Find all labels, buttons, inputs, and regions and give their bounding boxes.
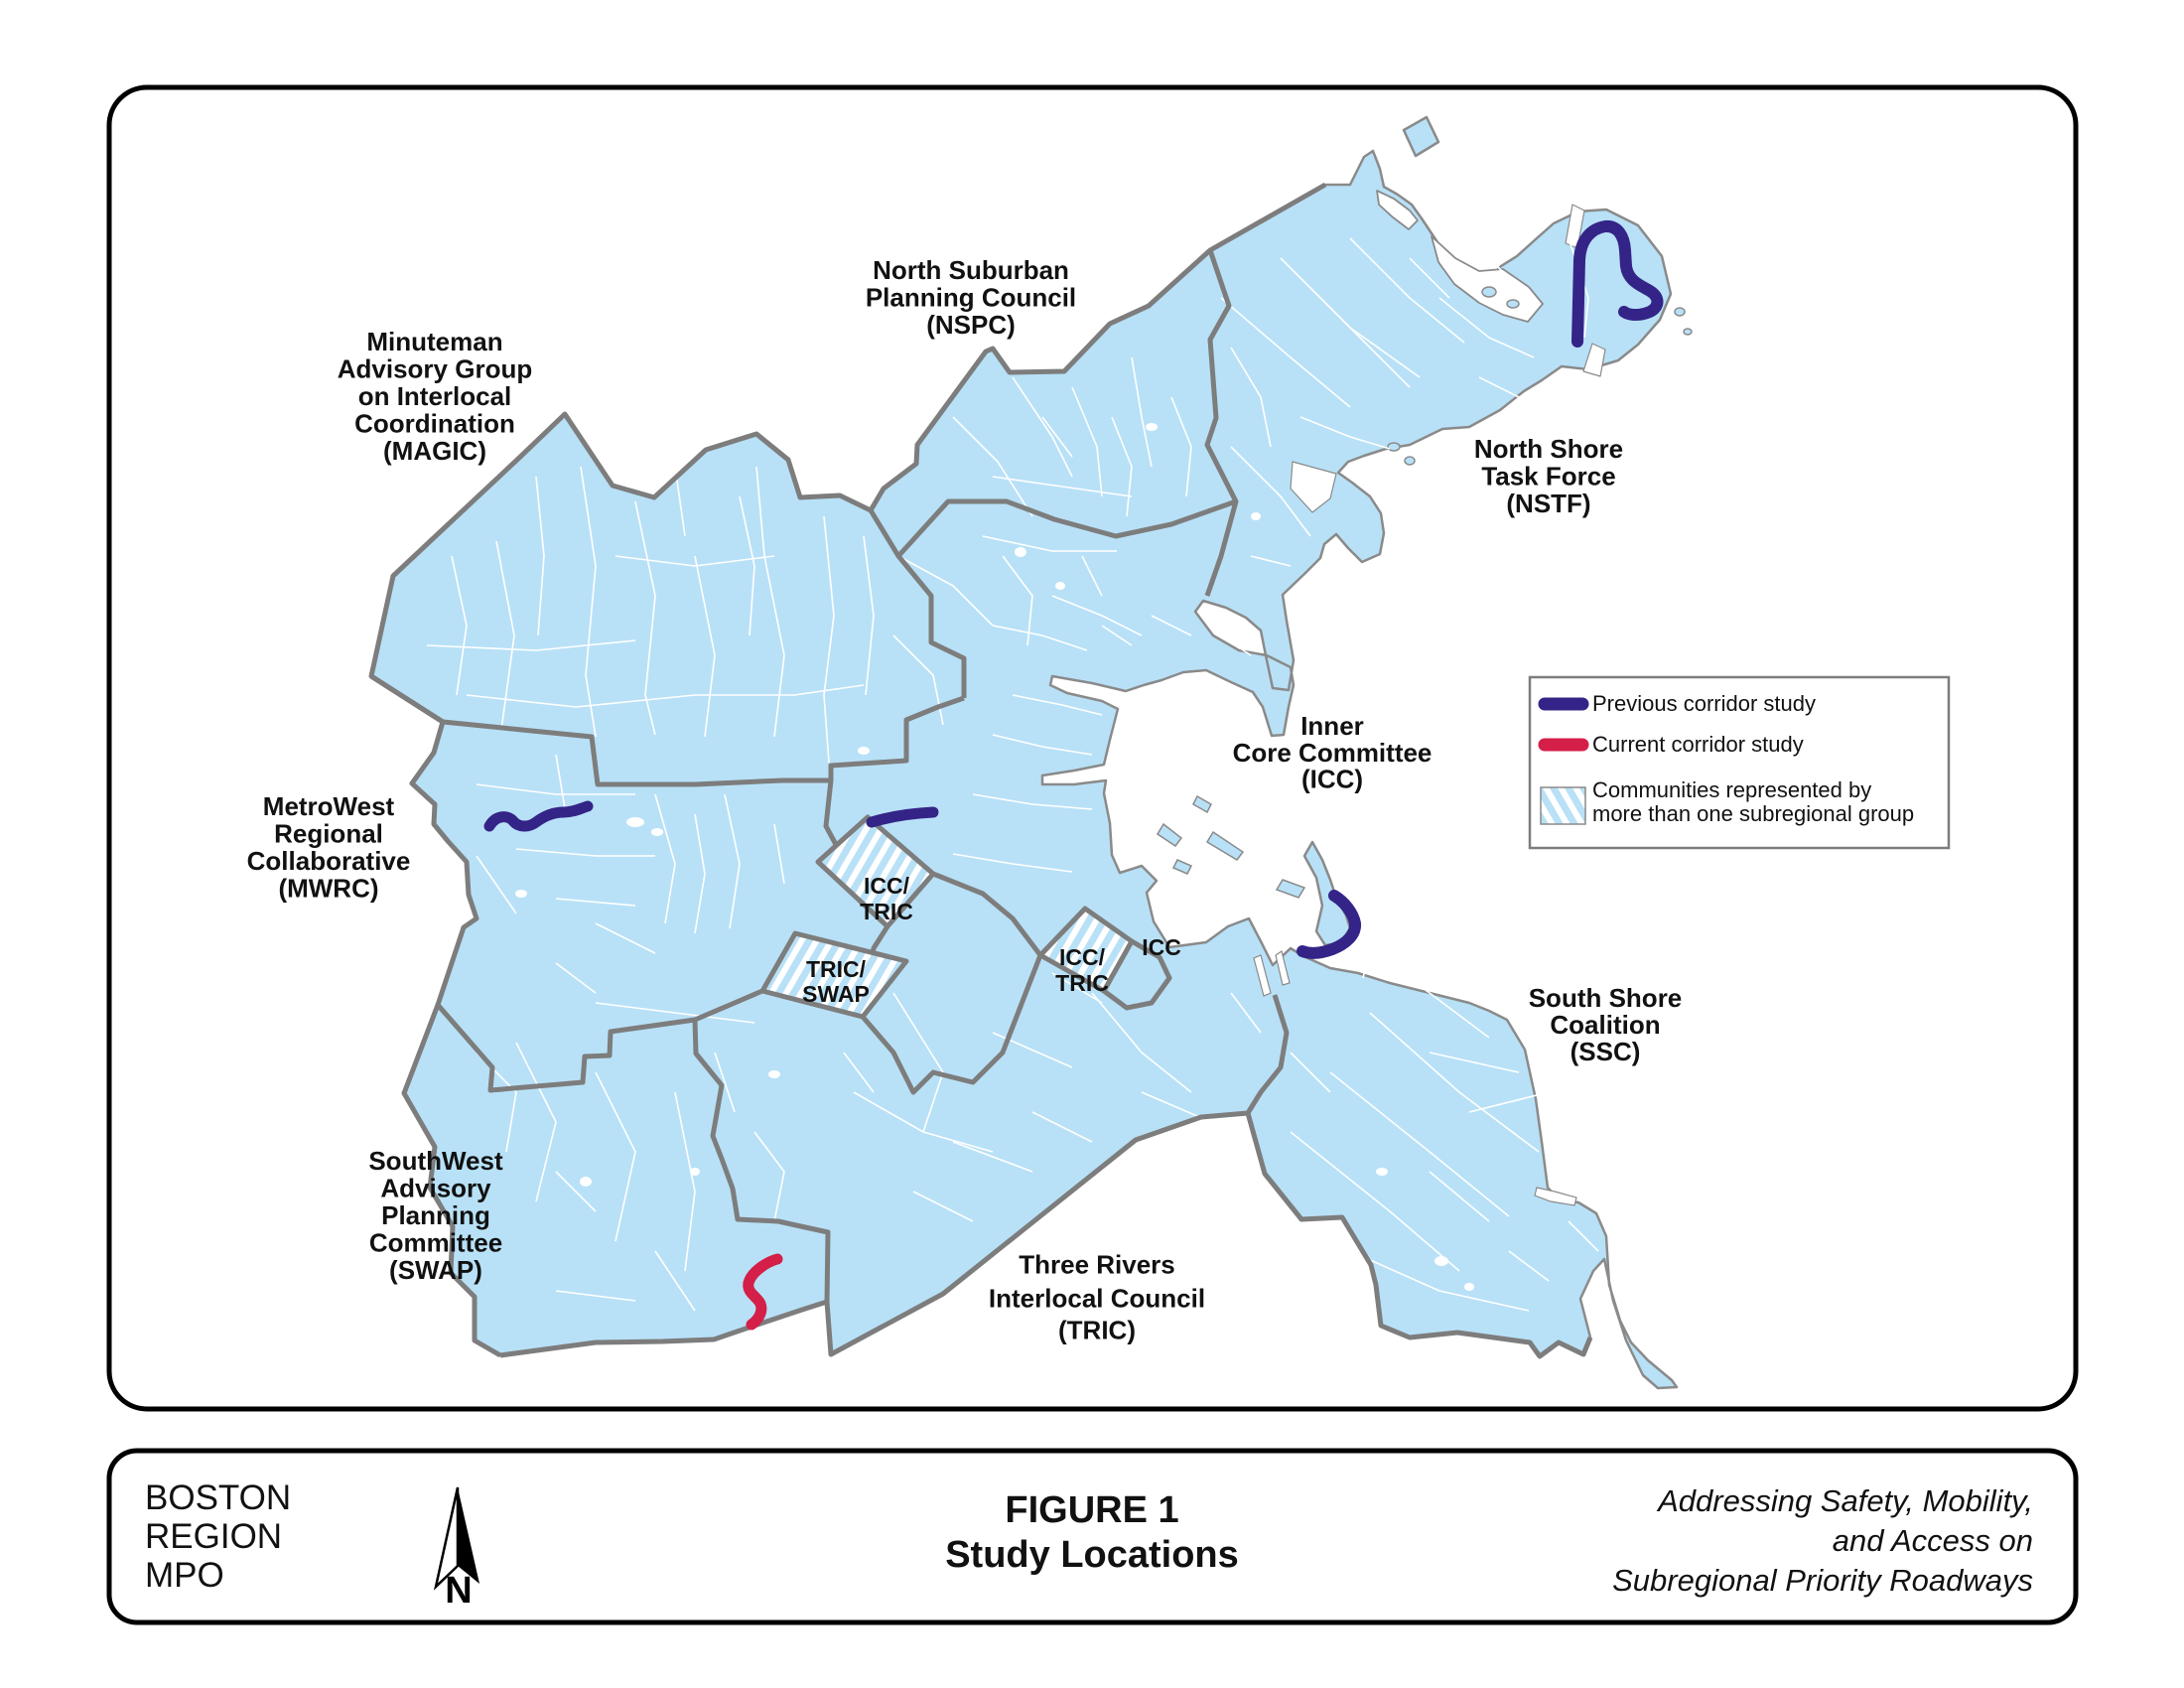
svg-text:Previous corridor study: Previous corridor study: [1592, 691, 1816, 716]
svg-text:Three Rivers: Three Rivers: [1019, 1250, 1175, 1280]
svg-text:North Suburban: North Suburban: [873, 255, 1069, 285]
svg-text:Current corridor study: Current corridor study: [1592, 732, 1804, 757]
svg-text:South Shore: South Shore: [1529, 983, 1683, 1013]
svg-text:SouthWest: SouthWest: [368, 1146, 503, 1176]
svg-text:Task Force: Task Force: [1481, 462, 1615, 492]
svg-text:(SSC): (SSC): [1570, 1037, 1641, 1066]
svg-text:SWAP: SWAP: [802, 981, 870, 1007]
svg-text:Coalition: Coalition: [1550, 1010, 1660, 1040]
svg-text:Planning Council: Planning Council: [866, 283, 1076, 313]
svg-text:Study Locations: Study Locations: [945, 1534, 1239, 1576]
svg-text:(ICC): (ICC): [1301, 765, 1363, 794]
svg-text:(SWAP): (SWAP): [389, 1255, 482, 1285]
svg-text:Core Committee: Core Committee: [1233, 738, 1433, 768]
svg-text:and Access on: and Access on: [1833, 1523, 2033, 1558]
svg-text:N: N: [445, 1570, 472, 1612]
svg-text:ICC: ICC: [1142, 934, 1181, 960]
svg-text:TRIC/: TRIC/: [806, 956, 867, 982]
svg-text:ICC/: ICC/: [864, 873, 910, 899]
svg-text:(MWRC): (MWRC): [278, 874, 378, 904]
svg-text:(TRIC): (TRIC): [1058, 1316, 1136, 1345]
svg-text:Minuteman: Minuteman: [366, 327, 502, 356]
svg-text:North Shore: North Shore: [1474, 434, 1623, 464]
svg-text:Advisory: Advisory: [380, 1174, 491, 1203]
svg-text:TRIC: TRIC: [860, 899, 913, 924]
svg-text:FIGURE 1: FIGURE 1: [1005, 1489, 1178, 1531]
svg-text:on Interlocal: on Interlocal: [358, 381, 512, 411]
svg-text:(NSPC): (NSPC): [926, 310, 1016, 340]
svg-text:Regional: Regional: [274, 819, 383, 849]
svg-text:Interlocal Council: Interlocal Council: [989, 1284, 1205, 1314]
svg-text:Planning: Planning: [381, 1200, 490, 1230]
svg-text:Subregional Priority Roadways: Subregional Priority Roadways: [1612, 1563, 2033, 1598]
svg-text:Committee: Committee: [369, 1228, 502, 1258]
svg-text:MPO: MPO: [145, 1556, 224, 1595]
svg-text:more than one subregional grou: more than one subregional group: [1592, 801, 1914, 826]
svg-text:TRIC: TRIC: [1055, 970, 1109, 996]
svg-text:(NSTF): (NSTF): [1506, 489, 1590, 518]
svg-text:Communities represented by: Communities represented by: [1592, 777, 1871, 802]
svg-text:(MAGIC): (MAGIC): [383, 436, 486, 466]
svg-text:Advisory Group: Advisory Group: [338, 354, 532, 384]
svg-text:MetroWest: MetroWest: [263, 791, 395, 821]
svg-text:Addressing Safety, Mobility,: Addressing Safety, Mobility,: [1656, 1483, 2033, 1518]
svg-text:BOSTON: BOSTON: [145, 1478, 291, 1517]
svg-text:Coordination: Coordination: [354, 409, 515, 439]
svg-text:REGION: REGION: [145, 1517, 282, 1556]
svg-text:Inner: Inner: [1300, 711, 1364, 741]
svg-text:ICC/: ICC/: [1059, 944, 1106, 970]
svg-text:Collaborative: Collaborative: [247, 846, 411, 876]
